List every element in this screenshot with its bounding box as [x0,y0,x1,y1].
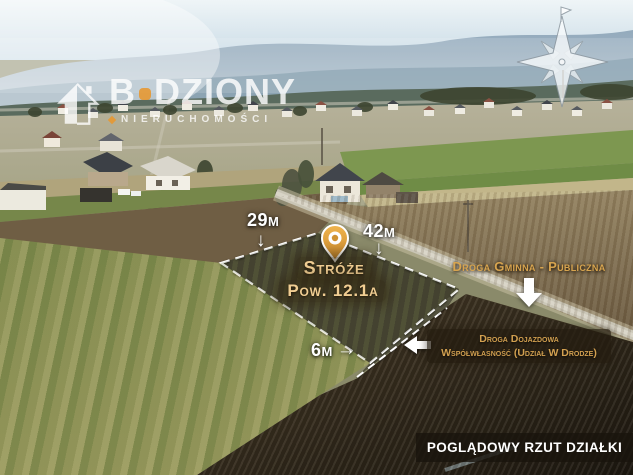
brand-watermark: B DZIONY NIERUCHOMOŚCI [54,74,296,132]
brand-subtitle-row: NIERUCHOMOŚCI [109,114,296,125]
footer-caption: POGLĄDOWY RZUT DZIAŁKI [427,440,622,455]
measurement-6m-value: 6m [311,340,333,361]
access-road-label-line1: Droga Dojazdowa [431,332,607,346]
right-arrow-icon: → [337,339,357,361]
brand-suffix: DZIONY [154,74,296,110]
public-road-label: Droga Gminna - Publiczna [452,259,605,274]
footer-banner: POGLĄDOWY RZUT DZIAŁKI [416,433,633,462]
brand-name: B DZIONY [109,74,296,110]
diamond-bullet-icon [108,115,116,123]
plot-name-label: Stróże [296,257,373,280]
access-road-label-line2: Współwłasność (Udział W Drodze) [431,346,607,360]
down-arrow-icon: ↓ [256,231,266,250]
brand-prefix: B [109,74,136,110]
brand-dot-icon [139,88,151,100]
access-road-panel: Droga Dojazdowa Współwłasność (Udział W … [427,329,611,363]
measurement-29m-label: 29m [247,210,279,231]
measurement-6m-label: 6m → [311,339,356,361]
plot-area-label: Pow. 12.1a [279,280,386,302]
down-arrow-icon: ↓ [374,239,384,258]
brand-subtitle: NIERUCHOMOŚCI [121,114,272,125]
listing-aerial-photo: B DZIONY NIERUCHOMOŚCI 29m ↓ 42m ↓ 6m → … [0,0,633,475]
aerial-photo-background [0,0,633,475]
brand-house-icon [54,74,100,132]
